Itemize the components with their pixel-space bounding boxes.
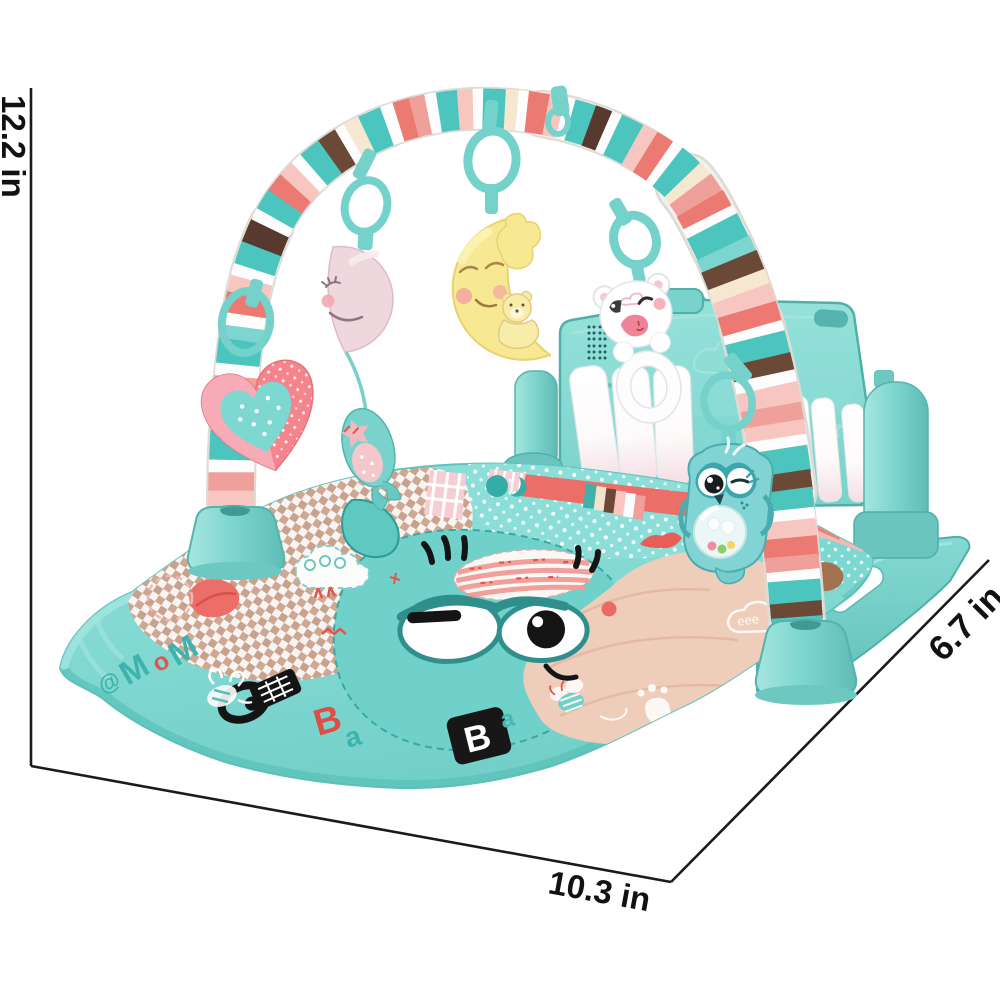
svg-text:eee: eee: [736, 611, 760, 629]
svg-text:12.2 in: 12.2 in: [0, 95, 32, 198]
